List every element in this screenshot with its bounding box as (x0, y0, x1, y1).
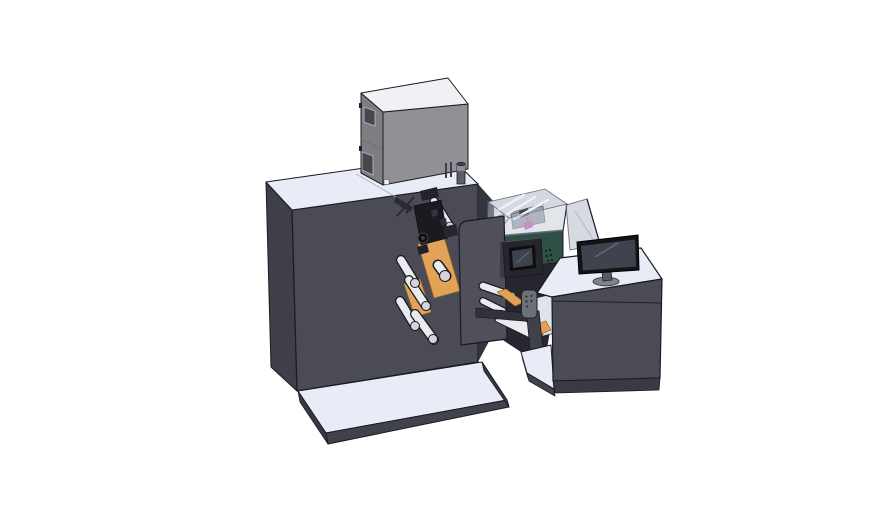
desk-skirt (553, 378, 660, 393)
print-head-boss-center (421, 236, 425, 240)
canister-cap (457, 162, 465, 165)
panel-screw-1 (401, 205, 403, 207)
hinge-tab-lower (359, 146, 362, 151)
cad-render-figure: Isometric 3D CAD render of an industrial… (0, 0, 888, 522)
front-vent-slot-2 (450, 162, 452, 177)
canister (457, 162, 465, 184)
roller-cap-5 (429, 335, 438, 344)
desk-platform (521, 345, 555, 396)
cad-render-canvas: Isometric 3D CAD render of an industrial… (0, 0, 888, 522)
roller-cap-4 (411, 322, 420, 331)
roller-cap-6 (440, 271, 451, 282)
front-vent-slot-1 (445, 163, 447, 178)
roller-cap-3 (422, 302, 431, 311)
desk-front-face (552, 279, 662, 381)
roller-cap-2 (411, 279, 420, 288)
pendant-body (522, 290, 538, 318)
front-label-square (384, 180, 389, 185)
marking-unit (359, 78, 468, 185)
panel-screw-2 (406, 211, 408, 213)
hinge-tab-upper (359, 103, 362, 108)
front-plate (459, 216, 507, 345)
